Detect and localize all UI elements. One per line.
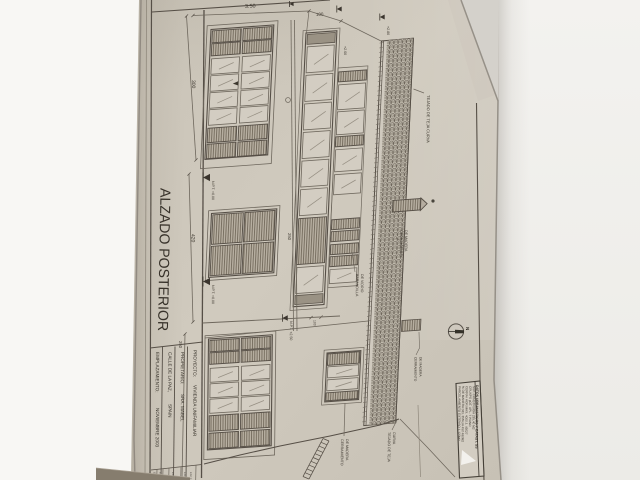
svg-text:CERRAr HOR MAX. 4000 J. 49027: CERRAr HOR MAX. 4000 J. 49027	[464, 386, 468, 435]
svg-text:VIVIENDA UNIFAMILIAR: VIVIENDA UNIFAMILIAR	[192, 385, 197, 437]
svg-text:250: 250	[287, 233, 292, 241]
svg-text:100: 100	[312, 320, 316, 326]
svg-text:BARANDILLA: BARANDILLA	[355, 274, 359, 297]
svg-text:EMPLAZAMIENTO:: EMPLAZAMIENTO:	[155, 352, 160, 393]
svg-text:CURVA: CURVA	[392, 432, 396, 445]
svg-text:SUP. CONSTRUIDA 235,40 M2: SUP. CONSTRUIDA 235,40 M2	[472, 386, 476, 430]
svg-text:N.P.T. +0.00: N.P.T. +0.00	[211, 285, 215, 304]
svg-text:CALLE DE LA PAZ,: CALLE DE LA PAZ,	[167, 352, 172, 392]
svg-text:N.P.T. +0.00: N.P.T. +0.00	[211, 181, 215, 200]
svg-text:NOVIEMBRE 2003: NOVIEMBRE 2003	[155, 408, 160, 448]
svg-text:100: 100	[316, 12, 324, 17]
svg-text:TEJADO DE TEJA CURVA: TEJADO DE TEJA CURVA	[426, 95, 431, 143]
svg-text:TEJADO DE TEJA: TEJADO DE TEJA	[387, 432, 391, 463]
svg-text:ALZADO POSTERIOR: ALZADO POSTERIOR	[154, 188, 172, 331]
svg-text:CERRAMIENTO: CERRAMIENTO	[413, 357, 417, 382]
svg-text:300: 300	[190, 80, 196, 89]
svg-text:SPAIN: SPAIN	[167, 404, 172, 417]
svg-text:CERRAMIENTO: CERRAMIENTO	[340, 439, 344, 466]
svg-text:DE VIDRIO: DE VIDRIO	[360, 274, 364, 293]
svg-text:DE MADERA: DE MADERA	[345, 439, 349, 461]
svg-text:DE MADERA: DE MADERA	[418, 357, 422, 377]
svg-text:DE MADERA: DE MADERA	[404, 230, 408, 252]
svg-text:+2.80: +2.80	[386, 26, 390, 35]
svg-text:+2.60: +2.60	[343, 46, 347, 55]
svg-text:420: 420	[189, 234, 195, 243]
svg-text:PROYECTO:: PROYECTO:	[192, 350, 197, 377]
svg-text:N: N	[465, 327, 470, 330]
svg-text:N.P.T. +2.50: N.P.T. +2.50	[289, 321, 293, 340]
svg-text:PROPIETARIO:: PROPIETARIO:	[180, 352, 185, 384]
svg-text:3.50: 3.50	[245, 3, 256, 10]
svg-text:CERRAMIENTO: CERRAMIENTO	[399, 230, 403, 257]
svg-text:SRA. MABEL: SRA. MABEL	[180, 394, 185, 422]
